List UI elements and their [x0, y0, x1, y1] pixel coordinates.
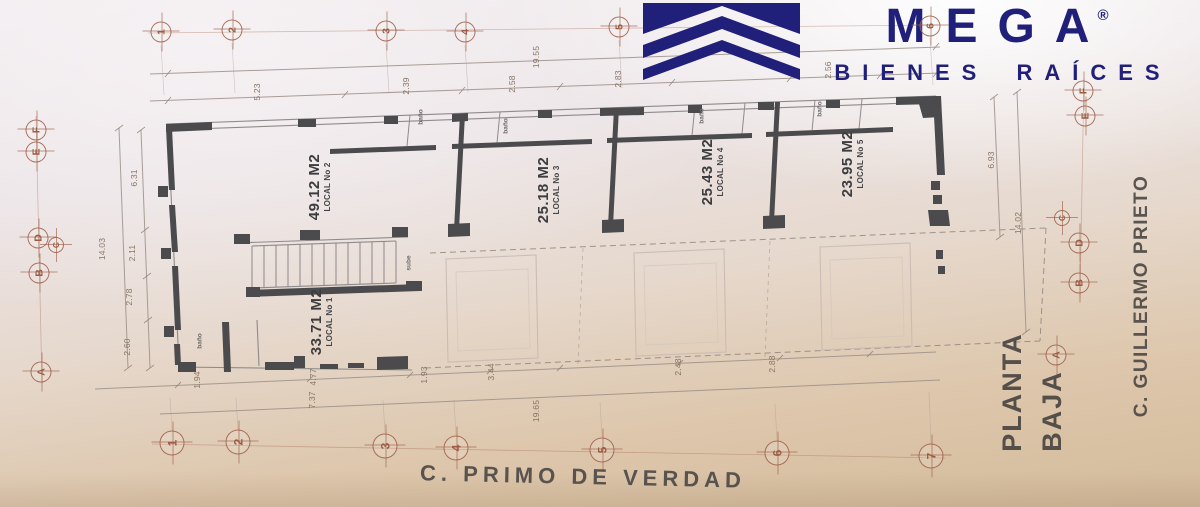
dim-label-right-1: 6.93: [986, 151, 996, 168]
dim-label-bottom-total: 19.65: [531, 400, 541, 422]
brand-tagline: BIENES RAÍCES: [812, 60, 1194, 86]
dim-label-top-total: 19.55: [531, 46, 541, 68]
registered-mark: ®: [1097, 7, 1108, 24]
grid-bubble-top-2: 2: [222, 20, 243, 41]
dim-label-left-4: 2.60: [122, 338, 132, 355]
bath-label-4: baño: [817, 101, 824, 117]
bath-label-5: baño: [197, 333, 204, 349]
grid-bubble-right-B: B: [1069, 273, 1090, 294]
grid-bubble-right-C: C: [1054, 210, 1070, 226]
grid-bubble-left-D: D: [28, 228, 49, 249]
grid-bubble-bottom-2: 2: [226, 430, 251, 455]
grid-bubble-top-6: 6: [920, 16, 941, 37]
local-3-label: 25.18 M2 LOCAL No 3: [537, 157, 561, 224]
dim-label-bottom-5: 2.48: [673, 358, 683, 375]
local-area: 33.71 M2: [310, 289, 324, 356]
grid-bubble-right-E: E: [1075, 106, 1096, 127]
grid-bubble-top-1: 1: [151, 22, 172, 43]
brand-chevron-icon: [643, 0, 803, 92]
grid-bubble-bottom-3: 3: [373, 434, 398, 459]
brand-name: MEGA®: [812, 2, 1194, 63]
dim-label-bottom-4: 3.44: [486, 363, 496, 380]
bath-label-3: baño: [699, 108, 706, 124]
plan-title-line1: PLANTA: [992, 332, 1032, 452]
local-name: LOCAL No 3: [552, 157, 561, 224]
dim-label-bottom-3: 1.93: [419, 366, 429, 383]
grid-bubble-bottom-1: 1: [160, 431, 185, 456]
plan-title: PLANTA BAJA: [992, 332, 1072, 452]
dim-label-left-2: 2.11: [127, 245, 137, 262]
dim-label-top-1: 5.23: [252, 83, 262, 100]
grid-bubble-right-F: F: [1073, 81, 1094, 102]
dim-label-top-5: 2.56: [823, 61, 833, 78]
dim-label-bottom-7: 7.37: [307, 391, 317, 408]
dim-label-left-3: 2.78: [124, 288, 134, 305]
street-label-right: C. GUILLERMO PRIETO: [1131, 175, 1153, 417]
plan-title-line2: BAJA: [1032, 332, 1072, 452]
local-name: LOCAL No 5: [856, 131, 865, 198]
local-4-label: 25.43 M2 LOCAL No 4: [701, 139, 725, 206]
local-area: 49.12 M2: [308, 154, 322, 221]
local-name: LOCAL No 4: [716, 139, 725, 206]
stair-label: sube: [406, 255, 413, 270]
dim-label-right-2: 14.02: [1013, 212, 1023, 234]
grid-bubble-left-A: A: [31, 362, 52, 383]
brand-logo: MEGA® BIENES RAÍCES: [812, 2, 1194, 86]
local-2-label: 49.12 M2 LOCAL No 2: [308, 154, 332, 221]
grid-bubble-bottom-4: 4: [444, 436, 469, 461]
grid-bubble-right-D: D: [1069, 233, 1090, 254]
bath-label-2: baño: [503, 118, 510, 134]
dim-label-top-4: 2.83: [613, 70, 623, 87]
bath-label-1: baño: [418, 109, 425, 125]
grid-bubble-left-B: B: [29, 263, 50, 284]
dim-label-bottom-2: 4.77: [308, 368, 318, 385]
local-area: 25.43 M2: [701, 139, 715, 206]
dim-label-bottom-6: 2.88: [767, 355, 777, 372]
grid-bubble-top-5: 5: [609, 17, 630, 38]
grid-bubble-top-3: 3: [376, 21, 397, 42]
local-name: LOCAL No 2: [323, 154, 332, 221]
blueprint-photo: MEGA® BIENES RAÍCES 1 2 3 4 5 6 1 2 3 4 …: [0, 0, 1200, 507]
dim-label-left-1: 6.31: [129, 169, 139, 186]
dim-label-top-2: 2.39: [401, 77, 411, 94]
grid-bubble-bottom-7: 7: [919, 444, 944, 469]
dim-label-left-total: 14.03: [97, 238, 107, 260]
local-5-label: 23.95 M2 LOCAL No 5: [841, 131, 865, 198]
local-area: 23.95 M2: [841, 131, 855, 198]
grid-bubble-bottom-6: 6: [765, 441, 790, 466]
grid-bubble-bottom-5: 5: [590, 438, 615, 463]
dim-label-bottom-1: 1.94: [192, 371, 202, 388]
local-name: LOCAL No 1: [325, 289, 334, 356]
local-1-label: 33.71 M2 LOCAL No 1: [310, 289, 334, 356]
dim-label-top-3: 2.58: [507, 75, 517, 92]
grid-bubble-left-C: C: [48, 237, 64, 253]
local-area: 25.18 M2: [537, 157, 551, 224]
grid-bubble-top-4: 4: [455, 22, 476, 43]
grid-bubble-left-E: E: [26, 142, 47, 163]
